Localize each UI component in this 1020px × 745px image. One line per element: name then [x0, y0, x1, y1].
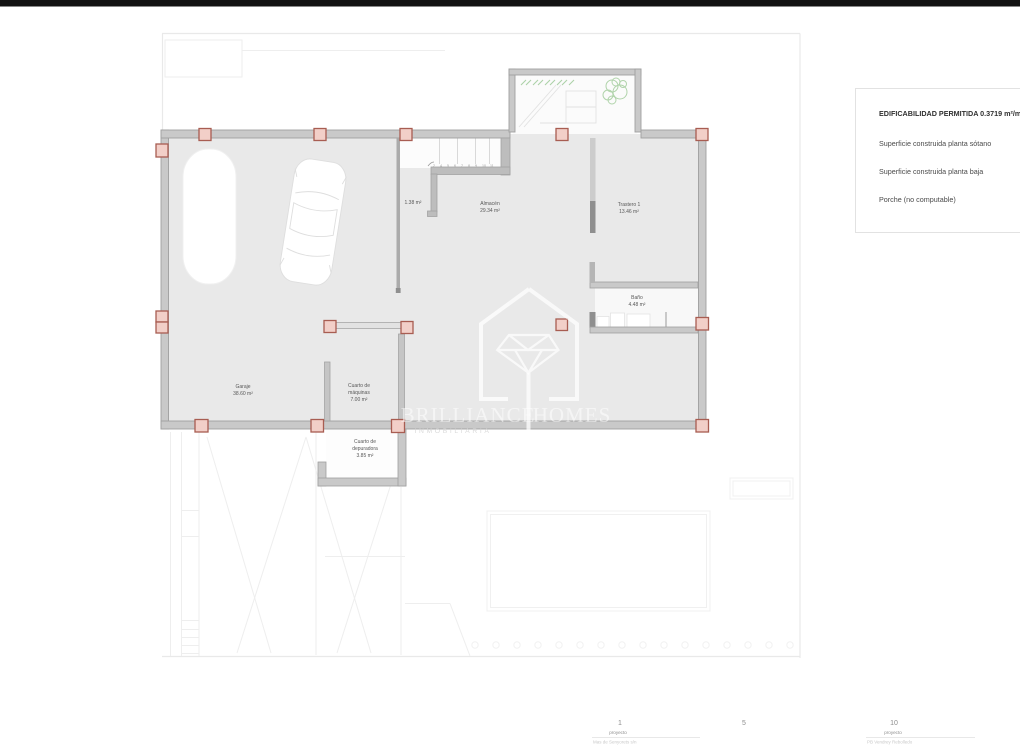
svg-text:5: 5	[742, 720, 746, 727]
svg-text:29.34 m²: 29.34 m²	[480, 208, 500, 214]
svg-text:1: 1	[618, 720, 622, 727]
svg-text:depuradora: depuradora	[352, 446, 378, 452]
svg-text:Superficie construida planta b: Superficie construida planta baja	[879, 167, 983, 176]
svg-text:Superficie construida planta s: Superficie construida planta sótano	[879, 139, 991, 148]
svg-text:4.48 m²: 4.48 m²	[629, 302, 646, 308]
svg-text:7.00 m²: 7.00 m²	[351, 397, 368, 403]
svg-text:proyecto: proyecto	[884, 730, 902, 735]
svg-text:Cuarto de: Cuarto de	[348, 383, 370, 389]
svg-text:Cuarto de: Cuarto de	[354, 439, 376, 445]
svg-text:Baño: Baño	[631, 295, 643, 301]
svg-text:HOMES: HOMES	[533, 403, 612, 427]
svg-text:Mas de Senyorets s/n: Mas de Senyorets s/n	[593, 740, 637, 745]
svg-text:Trastero 1: Trastero 1	[618, 202, 641, 208]
svg-text:3.85 m²: 3.85 m²	[357, 453, 374, 459]
svg-text:1.38 m²: 1.38 m²	[405, 200, 422, 206]
svg-text:PB Vendrey Rebolledo: PB Vendrey Rebolledo	[867, 740, 913, 745]
svg-text:Garaje: Garaje	[235, 384, 250, 390]
svg-text:Almacén: Almacén	[480, 201, 500, 207]
svg-text:INMOBILIARIA: INMOBILIARIA	[415, 428, 492, 435]
svg-text:10: 10	[890, 720, 898, 727]
svg-text:EDIFICABILIDAD PERMITIDA 0.371: EDIFICABILIDAD PERMITIDA 0.3719 m²/m²	[879, 109, 1020, 118]
svg-text:proyecto: proyecto	[609, 730, 627, 735]
svg-text:BRILLIANCE: BRILLIANCE	[401, 403, 536, 427]
svg-text:13.46 m²: 13.46 m²	[619, 209, 639, 215]
svg-text:Porche (no computable): Porche (no computable)	[879, 195, 956, 204]
svg-text:máquinas: máquinas	[348, 390, 370, 396]
svg-text:38.60 m²: 38.60 m²	[233, 391, 253, 397]
